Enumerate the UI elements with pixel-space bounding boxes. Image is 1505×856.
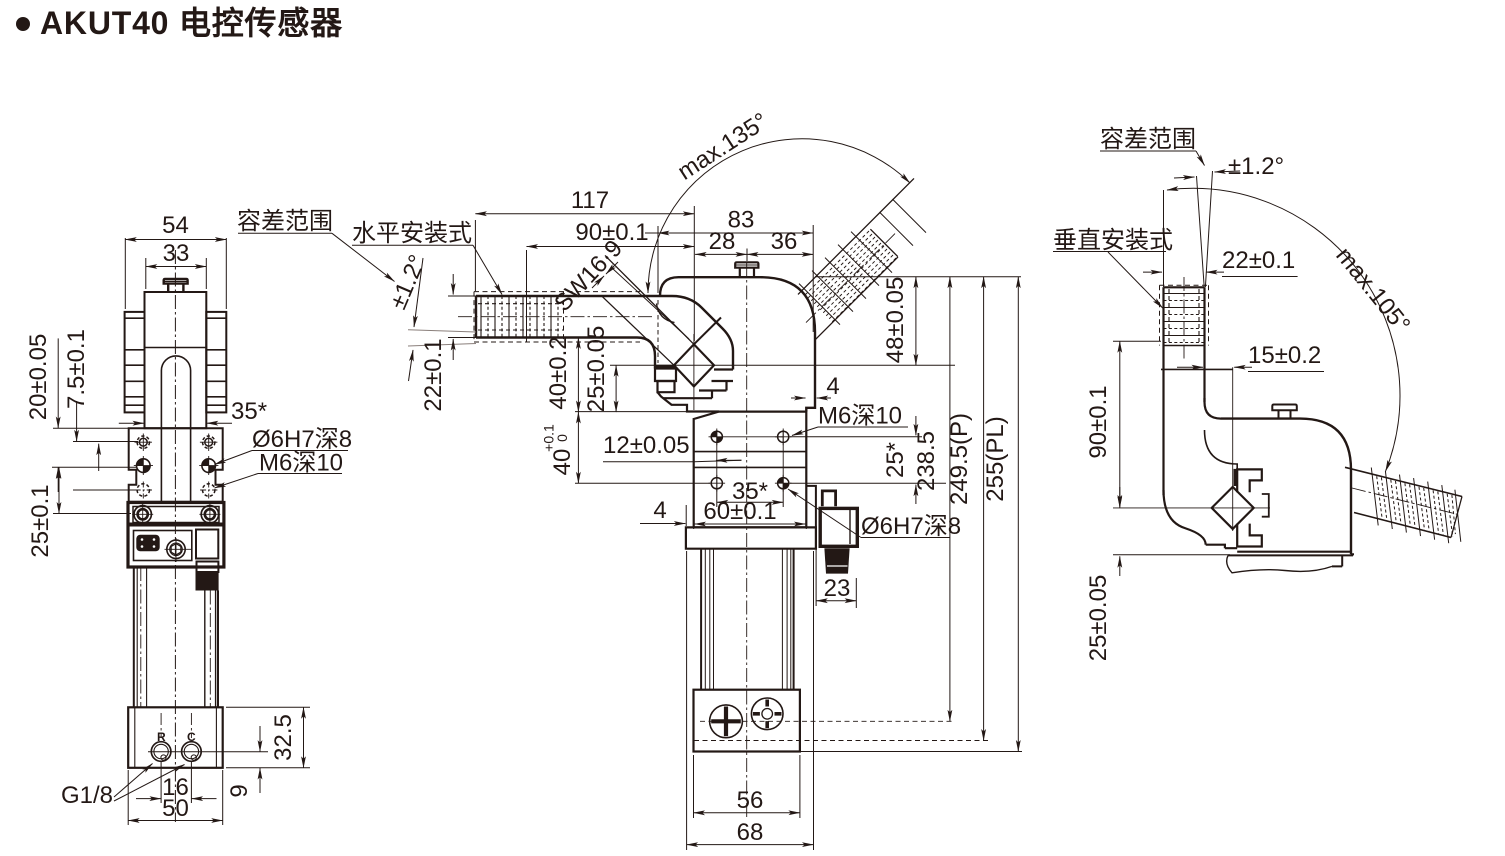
svg-text:±1.2°: ±1.2° — [385, 251, 432, 313]
svg-text:60±0.1: 60±0.1 — [703, 498, 776, 525]
svg-text:32.5: 32.5 — [270, 714, 297, 761]
svg-text:水平安装式: 水平安装式 — [352, 220, 472, 247]
svg-text:4: 4 — [653, 497, 666, 524]
svg-text:容差范围: 容差范围 — [237, 208, 333, 235]
svg-text:25±0.05: 25±0.05 — [1085, 575, 1112, 662]
svg-text:max.135°: max.135° — [673, 108, 773, 186]
svg-text:35*: 35* — [231, 398, 267, 425]
svg-text:68: 68 — [737, 819, 764, 846]
svg-text:M6深10: M6深10 — [259, 450, 343, 477]
svg-text:7.5±0.1: 7.5±0.1 — [63, 329, 90, 409]
svg-text:Ø6H7深8: Ø6H7深8 — [861, 513, 961, 540]
svg-text:M6深10: M6深10 — [818, 403, 902, 430]
svg-text:50: 50 — [162, 795, 189, 822]
svg-text:36: 36 — [771, 228, 798, 255]
svg-text:48±0.05: 48±0.05 — [882, 277, 909, 364]
svg-text:90±0.1: 90±0.1 — [1085, 385, 1112, 458]
svg-text:15±0.2: 15±0.2 — [1248, 342, 1321, 369]
svg-text:238.5: 238.5 — [913, 431, 940, 491]
svg-text:22±0.1: 22±0.1 — [420, 338, 447, 411]
svg-text:±1.2°: ±1.2° — [1228, 153, 1284, 180]
svg-text:25±0.1: 25±0.1 — [27, 484, 54, 557]
svg-text:4: 4 — [826, 373, 839, 400]
svg-text:20±0.05: 20±0.05 — [25, 334, 52, 421]
svg-text:AKUT40 电控传感器: AKUT40 电控传感器 — [40, 5, 343, 41]
svg-text:54: 54 — [162, 212, 189, 239]
svg-text:SW16·9: SW16·9 — [549, 235, 628, 317]
svg-text:G1/8: G1/8 — [61, 782, 113, 809]
svg-text:56: 56 — [737, 787, 764, 814]
svg-text:22±0.1: 22±0.1 — [1222, 247, 1295, 274]
svg-text:max.105°: max.105° — [1330, 242, 1415, 338]
svg-text:25*: 25* — [882, 442, 909, 478]
svg-text:25±0.05: 25±0.05 — [583, 326, 610, 413]
svg-text:117: 117 — [571, 187, 609, 214]
svg-text:33: 33 — [163, 240, 190, 267]
svg-text:40±0.2: 40±0.2 — [545, 336, 572, 409]
svg-text:垂直安装式: 垂直安装式 — [1053, 227, 1173, 254]
svg-text:12±0.05: 12±0.05 — [603, 432, 690, 459]
svg-text:255(PL): 255(PL) — [982, 416, 1009, 501]
svg-text:249.5(P): 249.5(P) — [946, 413, 973, 505]
svg-text:容差范围: 容差范围 — [1100, 126, 1196, 153]
svg-text:28: 28 — [709, 228, 736, 255]
svg-text:9: 9 — [226, 784, 253, 797]
svg-text:23: 23 — [824, 575, 851, 602]
svg-text:0: 0 — [554, 434, 570, 442]
